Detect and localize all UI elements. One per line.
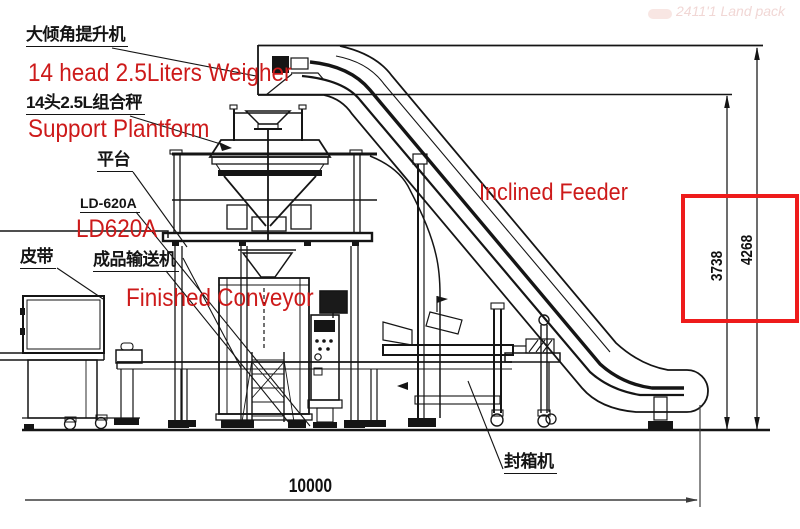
label-en-weigher: 14 head 2.5Liters Weigher <box>28 60 292 86</box>
carton-sealer-drawing <box>383 296 560 426</box>
dimension-total-length: 10000 <box>289 476 332 498</box>
label-en-platform: Support Plantform <box>28 116 209 142</box>
label-cn-elevator: 大倾角提升机 <box>26 26 128 47</box>
dimension-infeed-height: 3738 <box>709 246 727 285</box>
inclined-feeder-drawing <box>258 45 708 429</box>
control-monitor <box>320 291 347 313</box>
label-cn-weigher: 14头2.5L组合秤 <box>26 94 145 115</box>
label-cn-platform: 平台 <box>97 151 133 172</box>
label-cn-model: LD-620A <box>80 196 140 213</box>
watermark-text: 2411'1 Land pack <box>676 3 785 19</box>
bagging-machine-drawing <box>216 250 347 428</box>
engineering-drawing-page: 大倾角提升机 14 head 2.5Liters Weigher 14头2.5L… <box>0 0 800 529</box>
label-en-finished-conveyor: Finished Conveyor <box>126 285 314 311</box>
label-cn-belt: 皮带 <box>20 248 56 269</box>
dimension-overall-height: 4268 <box>739 230 757 269</box>
multihead-weigher-drawing <box>210 105 330 240</box>
label-cn-finished-conveyor: 成品输送机 <box>93 251 179 272</box>
label-en-model: LD620A <box>76 216 157 242</box>
label-cn-carton-sealer: 封箱机 <box>504 453 557 474</box>
label-en-inclined-feeder: Inclined Feeder <box>479 180 628 205</box>
watermark-logo-blob <box>648 9 672 19</box>
